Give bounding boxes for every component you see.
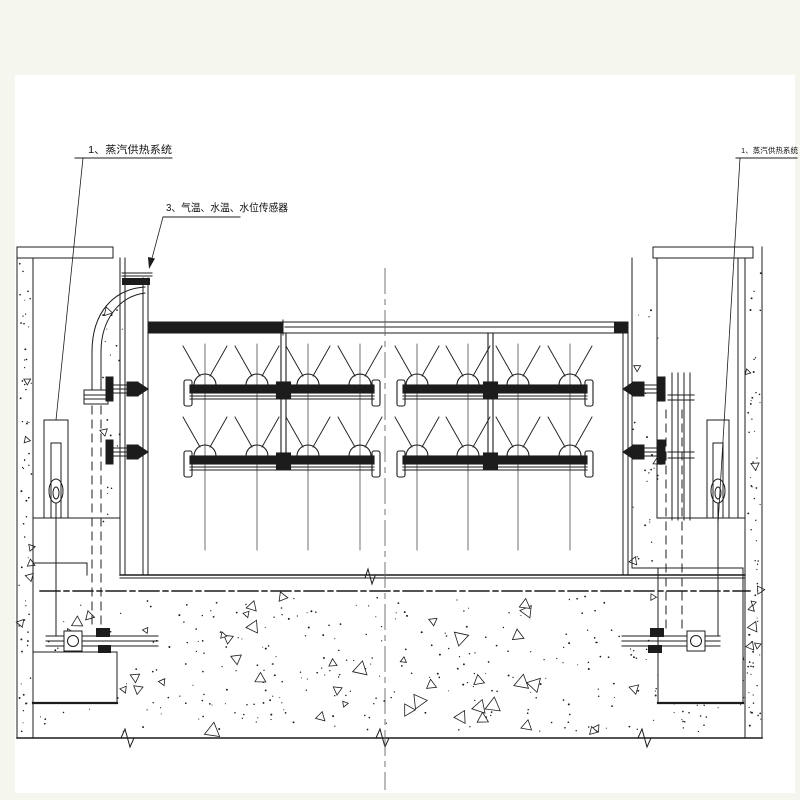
aggregate-dot bbox=[373, 703, 374, 704]
valve-symbol-right bbox=[687, 631, 705, 651]
aggregate-dot bbox=[202, 700, 204, 702]
left-footing-block bbox=[33, 652, 117, 703]
aggregate-dot bbox=[345, 695, 347, 697]
aggregate-dot bbox=[202, 716, 204, 718]
aggregate-dot bbox=[462, 684, 464, 686]
aggregate-dot bbox=[30, 677, 31, 678]
aggregate-dot bbox=[381, 626, 382, 627]
aggregate-dot bbox=[216, 602, 218, 604]
aggregate-dot bbox=[674, 712, 675, 713]
aggregate-dot bbox=[405, 649, 407, 651]
aggregate-dot bbox=[459, 656, 460, 657]
aggregate-dot bbox=[646, 659, 647, 660]
aggregate-dot bbox=[178, 614, 180, 616]
bolt-head bbox=[127, 445, 138, 459]
aggregate-dot bbox=[183, 621, 184, 622]
aggregate-dot bbox=[760, 504, 761, 505]
aggregate-dot bbox=[448, 648, 450, 650]
aggregate-dot bbox=[209, 703, 211, 705]
aggregate-dot bbox=[653, 720, 654, 721]
aggregate-dot bbox=[629, 726, 631, 728]
aggregate-dot bbox=[122, 329, 123, 330]
aggregate-dot bbox=[107, 514, 108, 515]
aggregate-dot bbox=[404, 611, 406, 613]
aggregate-dot bbox=[25, 605, 26, 606]
pipe-elbow-right-a bbox=[650, 628, 664, 637]
aggregate-dot bbox=[307, 679, 308, 680]
aggregate-dot bbox=[581, 612, 583, 614]
aggregate-dot bbox=[274, 674, 276, 676]
aggregate-dot bbox=[747, 412, 749, 414]
aggregate-dot bbox=[25, 313, 26, 314]
aggregate-dot bbox=[235, 670, 236, 671]
aggregate-dot bbox=[375, 616, 376, 617]
aggregate-dot bbox=[203, 694, 204, 695]
aggregate-dot bbox=[202, 615, 203, 616]
aggregate-dot bbox=[431, 644, 433, 646]
aggregate-dot bbox=[448, 690, 449, 691]
aggregate-dot bbox=[185, 702, 187, 704]
aggregate-dot bbox=[238, 637, 239, 638]
aggregate-dot bbox=[648, 316, 649, 317]
aggregate-dot bbox=[364, 715, 366, 717]
aggregate-dot bbox=[753, 359, 754, 360]
aggregate-dot bbox=[646, 649, 648, 651]
aggregate-dot bbox=[22, 722, 23, 723]
aggregate-dot bbox=[103, 521, 105, 523]
aggregate-dot bbox=[753, 291, 754, 292]
aggregate-dot bbox=[167, 697, 169, 699]
aggregate-dot bbox=[111, 487, 113, 489]
aggregate-dot bbox=[551, 722, 553, 724]
aggregate-dot bbox=[116, 309, 118, 311]
aggregate-dot bbox=[288, 618, 290, 620]
aggregate-dot bbox=[225, 646, 227, 648]
aggregate-dot bbox=[285, 712, 287, 714]
aggregate-dot bbox=[750, 309, 752, 311]
aggregate-dot bbox=[213, 616, 215, 618]
aggregate-dot bbox=[756, 569, 757, 570]
callout-steam-right-text: 1、蒸汽供热系统 bbox=[741, 146, 798, 155]
aggregate-dot bbox=[24, 348, 26, 350]
aggregate-dot bbox=[332, 715, 334, 717]
aggregate-dot bbox=[646, 436, 648, 438]
aggregate-dot bbox=[54, 649, 56, 651]
aggregate-dot bbox=[520, 615, 521, 616]
aggregate-dot bbox=[655, 695, 657, 697]
aggregate-dot bbox=[650, 469, 652, 471]
aggregate-dot bbox=[334, 725, 335, 726]
aggregate-dot bbox=[265, 689, 267, 691]
aggregate-dot bbox=[305, 635, 306, 636]
bolt-head bbox=[633, 445, 644, 459]
pipe-junction bbox=[277, 382, 291, 398]
aggregate-dot bbox=[297, 615, 298, 616]
aggregate-dot bbox=[646, 481, 647, 482]
aggregate-dot bbox=[657, 338, 658, 339]
aggregate-dot bbox=[651, 560, 653, 562]
aggregate-dot bbox=[644, 524, 646, 526]
aggregate-dot bbox=[424, 712, 426, 714]
aggregate-dot bbox=[633, 656, 635, 658]
aggregate-dot bbox=[530, 651, 531, 652]
aggregate-dot bbox=[281, 607, 283, 609]
pipe-junction bbox=[484, 382, 498, 398]
aggregate-dot bbox=[568, 703, 570, 705]
aggregate-dot bbox=[750, 666, 752, 668]
aggregate-dot bbox=[563, 699, 565, 701]
aggregate-dot bbox=[456, 599, 457, 600]
aggregate-dot bbox=[469, 726, 470, 727]
aggregate-dot bbox=[25, 389, 26, 390]
aggregate-dot bbox=[257, 664, 259, 666]
aggregate-dot bbox=[437, 673, 439, 675]
aggregate-dot bbox=[535, 697, 537, 699]
aggregate-dot bbox=[202, 640, 204, 642]
aggregate-dot bbox=[28, 613, 30, 615]
aggregate-dot bbox=[681, 719, 682, 720]
aggregate-dot bbox=[759, 654, 760, 655]
aggregate-dot bbox=[656, 688, 657, 689]
aggregate-dot bbox=[748, 692, 749, 693]
aggregate-dot bbox=[253, 704, 255, 706]
aggregate-dot bbox=[26, 423, 28, 425]
aggregate-dot bbox=[168, 646, 170, 648]
pipe-junction bbox=[484, 453, 498, 469]
aggregate-dot bbox=[527, 709, 528, 710]
aggregate-dot bbox=[338, 650, 339, 651]
aggregate-dot bbox=[195, 628, 197, 630]
aggregate-dot bbox=[161, 713, 162, 714]
aggregate-dot bbox=[569, 599, 570, 600]
aggregate-dot bbox=[198, 719, 199, 720]
aggregate-dot bbox=[754, 431, 755, 432]
aggregate-dot bbox=[752, 662, 753, 663]
aggregate-dot bbox=[753, 694, 754, 695]
aggregate-dot bbox=[263, 670, 264, 671]
aggregate-dot bbox=[257, 717, 258, 718]
aggregate-dot bbox=[23, 468, 24, 469]
aggregate-dot bbox=[44, 718, 46, 720]
aggregate-dot bbox=[368, 605, 369, 606]
aggregate-dot bbox=[491, 711, 493, 713]
aggregate-dot bbox=[339, 674, 340, 675]
aggregate-dot bbox=[19, 294, 21, 296]
aggregate-dot bbox=[618, 636, 620, 638]
aggregate-dot bbox=[24, 359, 25, 360]
aggregate-dot bbox=[568, 721, 570, 723]
pipe-union-left bbox=[84, 390, 108, 404]
aggregate-dot bbox=[507, 650, 509, 652]
aggregate-dot bbox=[750, 674, 751, 675]
aggregate-dot bbox=[279, 697, 280, 698]
pipe-elbow-left-b bbox=[98, 645, 111, 653]
aggregate-dot bbox=[281, 681, 283, 683]
aggregate-dot bbox=[20, 638, 22, 640]
aggregate-dot bbox=[353, 660, 354, 661]
aggregate-dot bbox=[26, 516, 28, 518]
aggregate-dot bbox=[329, 670, 330, 671]
aggregate-dot bbox=[757, 621, 758, 622]
aggregate-dot bbox=[187, 642, 188, 643]
aggregate-dot bbox=[19, 697, 21, 699]
aggregate-dot bbox=[31, 383, 32, 384]
aggregate-dot bbox=[683, 727, 684, 728]
aggregate-dot bbox=[22, 467, 23, 468]
aggregate-dot bbox=[634, 422, 636, 424]
aggregate-dot bbox=[196, 651, 197, 652]
aggregate-dot bbox=[268, 645, 270, 647]
aggregate-dot bbox=[421, 631, 423, 633]
aggregate-dot bbox=[110, 355, 111, 356]
aggregate-dot bbox=[146, 709, 147, 710]
aggregate-dot bbox=[246, 704, 247, 705]
aggregate-dot bbox=[153, 641, 154, 642]
aggregate-dot bbox=[698, 731, 699, 732]
aggregate-dot bbox=[160, 707, 161, 708]
aggregate-dot bbox=[630, 654, 632, 656]
aggregate-dot bbox=[20, 490, 22, 492]
aggregate-dot bbox=[594, 610, 596, 612]
aggregate-dot bbox=[31, 473, 33, 475]
aggregate-dot bbox=[147, 600, 149, 602]
pipe-elbow-right-b bbox=[648, 645, 662, 653]
aggregate-dot bbox=[275, 656, 276, 657]
aggregate-dot bbox=[638, 314, 639, 315]
aggregate-dot bbox=[474, 700, 475, 701]
aggregate-dot bbox=[367, 729, 369, 731]
aggregate-dot bbox=[598, 688, 599, 689]
aggregate-dot bbox=[463, 663, 465, 665]
aggregate-dot bbox=[27, 291, 29, 293]
aggregate-dot bbox=[637, 556, 638, 557]
aggregate-dot bbox=[527, 712, 529, 714]
aggregate-dot bbox=[565, 633, 567, 635]
aggregate-dot bbox=[750, 403, 752, 405]
aggregate-dot bbox=[757, 564, 758, 565]
aggregate-dot bbox=[23, 523, 25, 525]
aggregate-dot bbox=[283, 709, 284, 710]
aggregate-dot bbox=[334, 638, 335, 639]
aggregate-dot bbox=[748, 431, 750, 433]
aggregate-dot bbox=[682, 711, 684, 713]
aggregate-dot bbox=[338, 676, 339, 677]
aggregate-dot bbox=[203, 653, 204, 654]
aggregate-dot bbox=[150, 606, 152, 608]
aggregate-dot bbox=[752, 651, 754, 653]
aggregate-dot bbox=[688, 712, 690, 714]
aggregate-dot bbox=[748, 634, 750, 636]
aggregate-dot bbox=[220, 631, 222, 633]
aggregate-dot bbox=[654, 468, 655, 469]
aggregate-dot bbox=[328, 625, 330, 627]
aggregate-dot bbox=[545, 678, 546, 679]
aggregate-dot bbox=[759, 402, 760, 403]
bolt-plate bbox=[658, 377, 665, 401]
aggregate-dot bbox=[394, 691, 395, 692]
aggregate-dot bbox=[445, 632, 446, 633]
aggregate-dot bbox=[756, 457, 757, 458]
aggregate-dot bbox=[749, 707, 750, 708]
aggregate-dot bbox=[281, 702, 282, 703]
aggregate-dot bbox=[651, 542, 652, 543]
aggregate-dot bbox=[107, 487, 109, 489]
aggregate-dot bbox=[110, 631, 112, 633]
aggregate-dot bbox=[457, 668, 459, 670]
aggregate-dot bbox=[57, 648, 58, 649]
pipe-fitting-left bbox=[64, 631, 82, 651]
aggregate-dot bbox=[406, 615, 408, 617]
gate-slot-seal-left bbox=[122, 278, 150, 285]
aggregate-dot bbox=[270, 714, 272, 716]
aggregate-dot bbox=[756, 487, 758, 489]
aggregate-dot bbox=[750, 529, 751, 530]
aggregate-dot bbox=[750, 477, 751, 478]
drawing-canvas: 1、蒸汽供热系统 3、气温、水温、水位传感器 1、蒸汽供热系统 bbox=[0, 0, 800, 800]
aggregate-dot bbox=[395, 618, 396, 619]
aggregate-dot bbox=[179, 695, 180, 696]
aggregate-dot bbox=[466, 626, 468, 628]
aggregate-dot bbox=[22, 315, 23, 316]
aggregate-dot bbox=[281, 614, 282, 615]
aggregate-dot bbox=[754, 594, 756, 596]
aggregate-dot bbox=[107, 493, 108, 494]
technical-drawing: 1、蒸汽供热系统 3、气温、水温、水位传感器 1、蒸汽供热系统 bbox=[0, 0, 800, 800]
pipe-elbow-left-a bbox=[96, 628, 110, 637]
aggregate-dot bbox=[755, 520, 756, 521]
aggregate-dot bbox=[89, 709, 90, 710]
aggregate-dot bbox=[474, 652, 475, 653]
aggregate-dot bbox=[512, 677, 513, 678]
aggregate-dot bbox=[684, 721, 686, 723]
aggregate-dot bbox=[29, 298, 31, 300]
aggregate-dot bbox=[752, 461, 754, 463]
aggregate-dot bbox=[439, 654, 441, 656]
aggregate-dot bbox=[346, 659, 347, 660]
aggregate-dot bbox=[370, 664, 371, 665]
aggregate-dot bbox=[508, 612, 509, 613]
aggregate-dot bbox=[751, 297, 753, 299]
aggregate-dot bbox=[496, 691, 498, 693]
aggregate-dot bbox=[27, 631, 29, 633]
aggregate-dot bbox=[649, 522, 650, 523]
aggregate-dot bbox=[539, 730, 540, 731]
aggregate-dot bbox=[28, 453, 30, 455]
bolt-plate bbox=[106, 377, 113, 401]
aggregate-dot bbox=[473, 686, 474, 687]
aggregate-dot bbox=[356, 605, 357, 606]
aggregate-dot bbox=[649, 519, 650, 520]
aggregate-dot bbox=[245, 604, 247, 606]
aggregate-dot bbox=[757, 715, 759, 717]
aggregate-dot bbox=[306, 689, 307, 690]
aggregate-dot bbox=[270, 719, 271, 720]
aggregate-dot bbox=[192, 685, 193, 686]
aggregate-dot bbox=[556, 658, 557, 659]
aggregate-dot bbox=[650, 309, 652, 311]
aggregate-dot bbox=[587, 630, 588, 631]
aggregate-dot bbox=[411, 673, 413, 675]
aggregate-dot bbox=[307, 612, 308, 613]
aggregate-dot bbox=[751, 400, 752, 401]
aggregate-dot bbox=[242, 718, 243, 719]
aggregate-dot bbox=[272, 696, 273, 697]
aggregate-dot bbox=[234, 712, 236, 714]
aggregate-dot bbox=[321, 667, 322, 668]
aggregate-dot bbox=[598, 696, 600, 698]
aggregate-dot bbox=[630, 648, 631, 649]
bolt-plate bbox=[106, 440, 113, 464]
aggregate-dot bbox=[106, 329, 107, 330]
aggregate-dot bbox=[611, 629, 613, 631]
aggregate-dot bbox=[463, 610, 464, 611]
aggregate-dot bbox=[429, 677, 430, 678]
aggregate-dot bbox=[366, 634, 367, 635]
aggregate-dot bbox=[334, 695, 335, 696]
aggregate-dot bbox=[117, 445, 118, 446]
aggregate-dot bbox=[202, 671, 204, 673]
aggregate-dot bbox=[27, 421, 28, 422]
aggregate-dot bbox=[749, 661, 751, 663]
aggregate-dot bbox=[379, 676, 380, 677]
aggregate-dot bbox=[19, 263, 21, 265]
aggregate-dot bbox=[397, 602, 399, 604]
aggregate-dot bbox=[757, 560, 759, 562]
aggregate-dot bbox=[22, 421, 23, 422]
aggregate-dot bbox=[608, 656, 610, 658]
aggregate-dot bbox=[611, 705, 613, 707]
aggregate-dot bbox=[25, 600, 26, 601]
aggregate-dot bbox=[588, 726, 590, 728]
aggregate-dot bbox=[648, 472, 649, 473]
aggregate-dot bbox=[273, 663, 274, 664]
aggregate-dot bbox=[27, 645, 28, 646]
aggregate-dot bbox=[749, 725, 751, 727]
aggregate-dot bbox=[23, 710, 24, 711]
aggregate-dot bbox=[755, 357, 756, 358]
aggregate-dot bbox=[485, 636, 487, 638]
aggregate-dot bbox=[142, 726, 144, 728]
aggregate-dot bbox=[198, 641, 199, 642]
aggregate-dot bbox=[18, 585, 19, 586]
aggregate-dot bbox=[26, 359, 28, 361]
aggregate-dot bbox=[28, 422, 29, 423]
left-pier-cap bbox=[17, 247, 113, 258]
aggregate-dot bbox=[703, 724, 705, 726]
aggregate-dot bbox=[753, 371, 755, 373]
aggregate-dot bbox=[371, 657, 373, 659]
aggregate-dot bbox=[575, 730, 576, 731]
aggregate-dot bbox=[757, 617, 758, 618]
pipe-junction bbox=[277, 453, 291, 469]
aggregate-dot bbox=[633, 650, 634, 651]
aggregate-dot bbox=[588, 668, 590, 670]
aggregate-dot bbox=[152, 671, 154, 673]
aggregate-dot bbox=[469, 653, 470, 654]
aggregate-dot bbox=[243, 714, 245, 716]
aggregate-dot bbox=[759, 309, 761, 311]
bolt-head bbox=[127, 382, 138, 396]
aggregate-dot bbox=[40, 716, 41, 717]
aggregate-dot bbox=[474, 673, 475, 674]
aggregate-dot bbox=[491, 690, 493, 692]
aggregate-dot bbox=[564, 727, 566, 729]
aggregate-dot bbox=[682, 721, 684, 723]
aggregate-dot bbox=[269, 699, 271, 701]
aggregate-dot bbox=[20, 397, 22, 399]
aggregate-dot bbox=[490, 715, 491, 716]
aggregate-dot bbox=[697, 705, 698, 706]
